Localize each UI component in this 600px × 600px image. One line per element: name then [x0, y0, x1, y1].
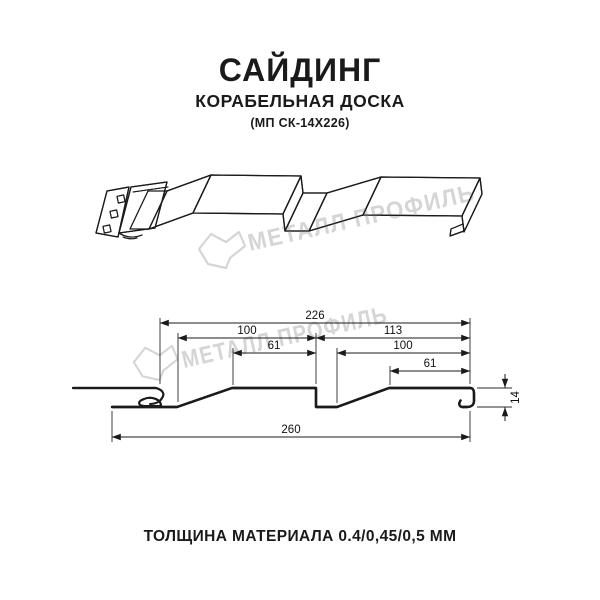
watermark-lower: МЕТАЛЛ ПРОФИЛЬ: [134, 301, 390, 380]
brand-logo-icon: [199, 232, 245, 268]
dim-label-61-left: 61: [268, 340, 281, 352]
technical-drawing: МЕТАЛЛ ПРОФИЛЬ МЕТАЛЛ ПРОФИЛЬ: [0, 0, 600, 600]
dim-label-260: 260: [281, 424, 300, 436]
brand-logo-icon: [134, 346, 178, 380]
dim-label-226: 226: [305, 310, 324, 322]
dim-label-100-right: 100: [393, 340, 412, 352]
dim-label-100-left: 100: [237, 325, 256, 337]
dim-label-113: 113: [384, 325, 402, 337]
dim-label-14: 14: [510, 391, 522, 404]
cross-section-fill: [73, 388, 474, 407]
thickness-note: ТОЛЩИНА МАТЕРИАЛА 0.4/0,45/0,5 ММ: [0, 528, 600, 546]
diagram-page: САЙДИНГ КОРАБЕЛЬНАЯ ДОСКА (МП СК-14Х226): [0, 0, 600, 600]
dim-label-61-right: 61: [424, 358, 437, 370]
